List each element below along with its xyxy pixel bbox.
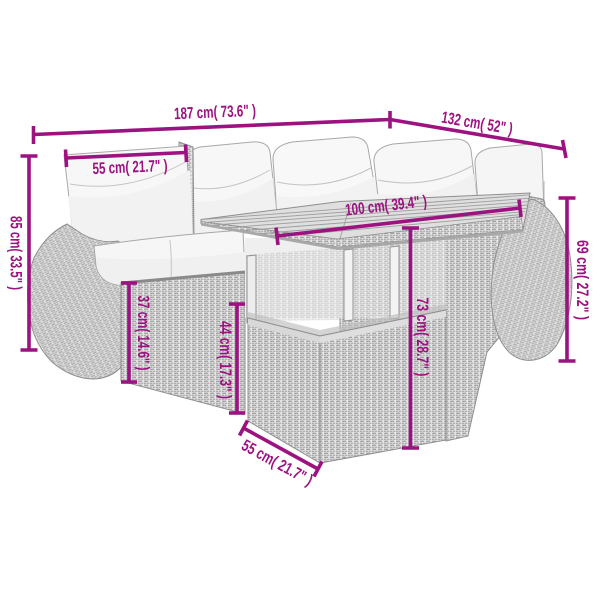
svg-text:37 cm( 14.6" ): 37 cm( 14.6" ) [134, 296, 152, 371]
svg-text:69 cm( 27.2" ): 69 cm( 27.2" ) [573, 240, 591, 320]
svg-text:73 cm( 28.7" ): 73 cm( 28.7" ) [413, 298, 431, 377]
svg-text:55 cm( 21.7" ): 55 cm( 21.7" ) [92, 157, 168, 178]
svg-text:187 cm( 73.6" ): 187 cm( 73.6" ) [174, 102, 257, 123]
svg-text:85 cm( 33.5" ): 85 cm( 33.5" ) [7, 216, 25, 290]
svg-text:44 cm( 17.3" ): 44 cm( 17.3" ) [216, 321, 234, 399]
